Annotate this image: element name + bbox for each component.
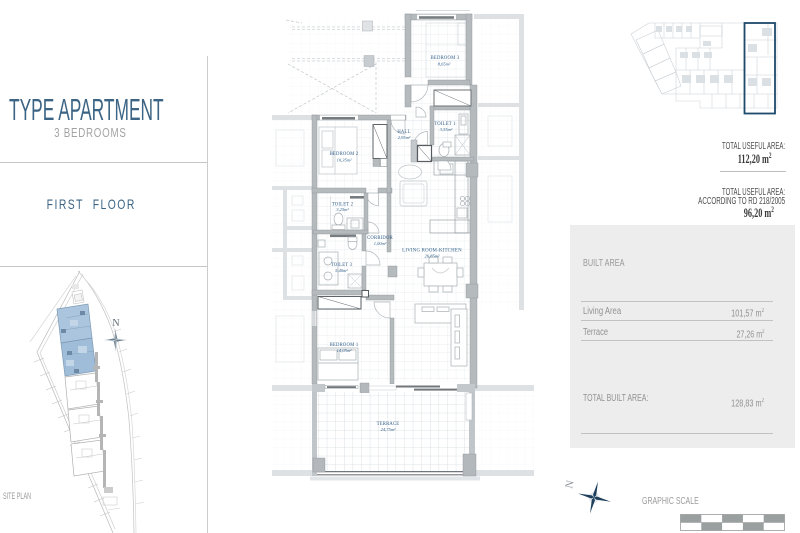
svg-text:N: N <box>563 479 577 490</box>
svg-text:BEDROOM 2: BEDROOM 2 <box>330 152 359 157</box>
svg-text:N: N <box>112 318 119 329</box>
svg-text:BEDROOM 3: BEDROOM 3 <box>431 56 460 61</box>
